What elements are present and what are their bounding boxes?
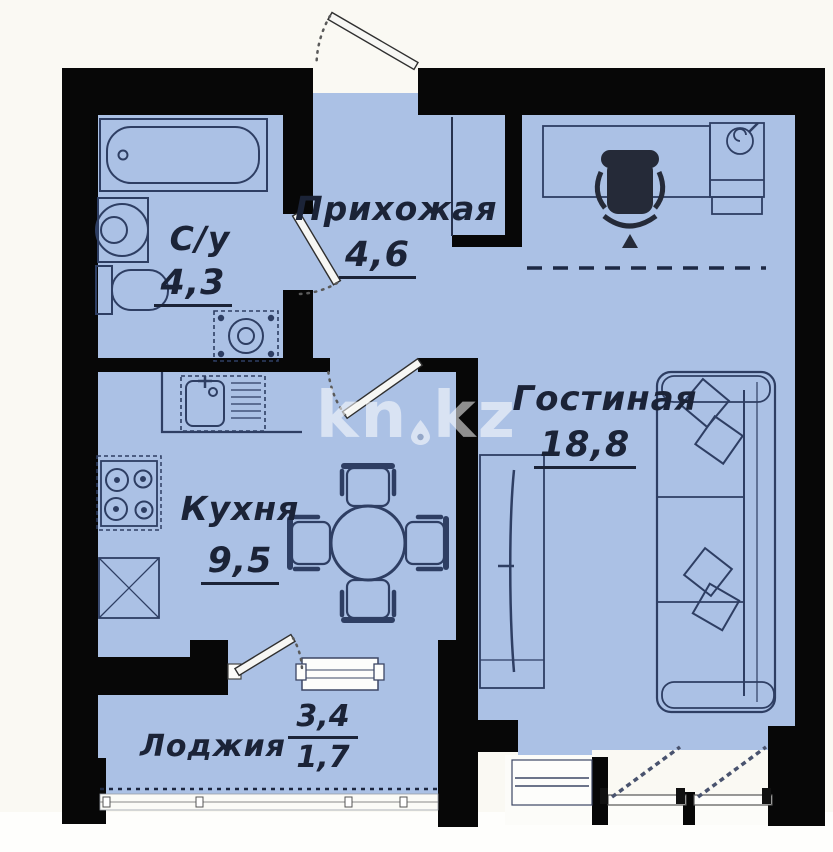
hallway-label: Прихожая (295, 192, 475, 225)
kitchen-area: 9,5 (165, 544, 315, 585)
kitchen-area-value: 9,5 (201, 544, 278, 585)
wall-left (62, 68, 98, 790)
hallway-area-value: 4,6 (339, 238, 416, 279)
living-area-value: 18,8 (534, 428, 636, 469)
bathroom-area-value: 4,3 (154, 266, 231, 307)
wall-hallway-living (505, 115, 522, 247)
window-sill-left (505, 755, 595, 825)
wall-left-corner (62, 758, 106, 824)
living-label: Гостиная (510, 382, 700, 416)
kitchen-label: Кухня (165, 492, 315, 525)
wall-living-bottom (438, 720, 518, 752)
hallway-area: 4,6 (295, 238, 460, 279)
wall-right-corner (768, 726, 825, 826)
loggia-area-fraction: 3,4 1,7 (285, 702, 361, 773)
wall-right (795, 68, 825, 735)
drop-icon (411, 420, 430, 445)
loggia-area-reduced: 1,7 (285, 739, 361, 773)
wall-door-stub (683, 792, 695, 825)
watermark-text-left: kn (316, 384, 408, 448)
wall-window-stub (592, 757, 608, 825)
watermark-text-right: kz (433, 384, 517, 448)
loggia-label: Лоджия (140, 732, 285, 762)
wall-kitchen-loggia-block (190, 640, 228, 695)
bathroom-label: С/у (140, 222, 260, 255)
living-area: 18,8 (500, 428, 670, 469)
wall-hallway-living-cap (452, 235, 522, 247)
entrance-door-icon (317, 12, 419, 69)
wall-bathroom-kitchen (62, 358, 330, 372)
floor-plan: Прихожая 4,6 С/у 4,3 Кухня 9,5 Гостиная … (0, 0, 833, 852)
wall-top-right (418, 68, 825, 115)
loggia-area-total: 3,4 (288, 702, 357, 739)
watermark: kn kz (316, 384, 517, 448)
bathroom-area: 4,3 (138, 266, 248, 307)
floor-entrance-gap (313, 93, 418, 117)
wall-top-left (62, 68, 313, 115)
